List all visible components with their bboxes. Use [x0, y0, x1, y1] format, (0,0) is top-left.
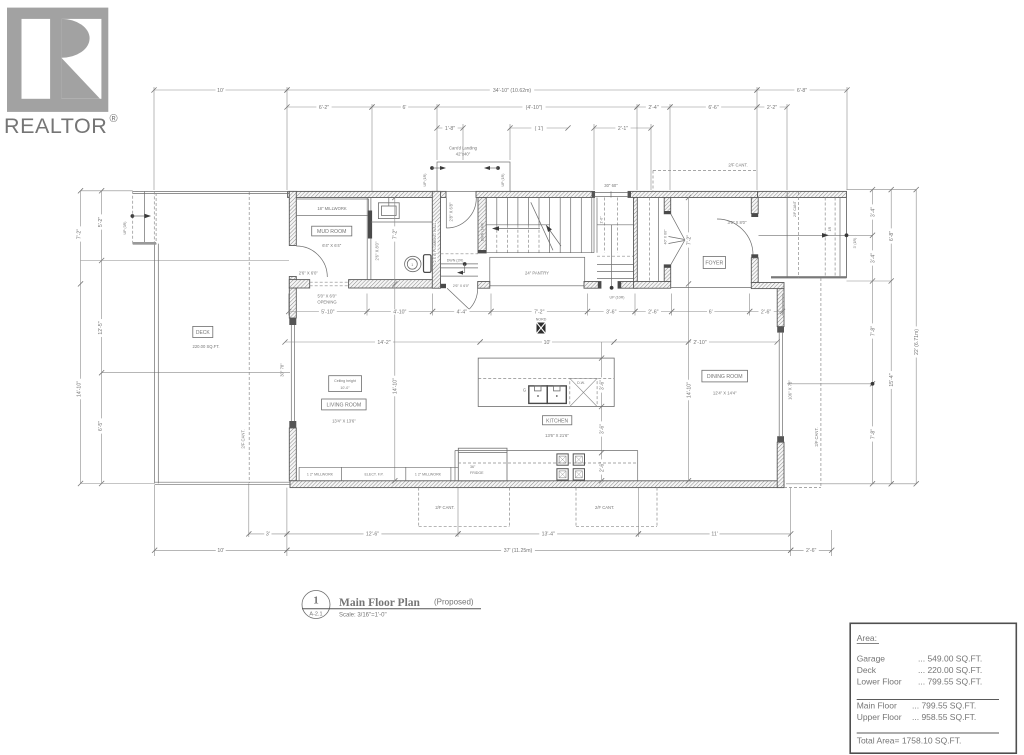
svg-text:2/F CANT.: 2/F CANT. — [814, 427, 819, 446]
svg-text:7'-2": 7'-2" — [77, 229, 83, 239]
svg-text:... 799.55 SQ.FT.: ... 799.55 SQ.FT. — [918, 677, 982, 687]
svg-text:1R: 1R — [828, 226, 832, 231]
svg-text:UP (1R): UP (1R) — [501, 174, 505, 187]
svg-text:18" MILLWORK: 18" MILLWORK — [317, 206, 347, 211]
svg-text:2/F CANT.: 2/F CANT. — [595, 505, 614, 510]
svg-text:Ceiling height: Ceiling height — [334, 379, 356, 383]
svg-text:7'-8": 7'-8" — [870, 326, 876, 336]
svg-text:37' (11.25m): 37' (11.25m) — [504, 548, 533, 554]
svg-text:Scale: 3/16"=1'-0": Scale: 3/16"=1'-0" — [339, 613, 387, 619]
svg-text:DECK: DECK — [196, 330, 211, 336]
svg-text:Deck: Deck — [857, 665, 877, 675]
svg-text:DWN (14R): DWN (14R) — [481, 223, 485, 242]
svg-text:(4'-10"): (4'-10") — [526, 105, 543, 111]
svg-text:1 2" MILLWORK: 1 2" MILLWORK — [307, 473, 334, 477]
svg-text:( 1'): ( 1') — [535, 126, 544, 132]
svg-text:13'4" X 13'6": 13'4" X 13'6" — [332, 419, 356, 424]
svg-text:... 220.00 SQ.FT.: ... 220.00 SQ.FT. — [918, 665, 982, 675]
svg-text:UP (3R): UP (3R) — [123, 222, 127, 235]
svg-text:14'-10": 14'-10" — [77, 381, 83, 397]
svg-text:6'-6": 6'-6" — [708, 105, 718, 111]
svg-text:7'-8": 7'-8" — [870, 429, 876, 439]
svg-text:(Proposed): (Proposed) — [434, 598, 474, 607]
svg-text:7'-2": 7'-2" — [534, 309, 544, 315]
svg-text:KITCHEN: KITCHEN — [546, 418, 568, 424]
svg-text:2'8" X 6'8": 2'8" X 6'8" — [449, 202, 454, 222]
svg-text:DINING ROOM: DINING ROOM — [707, 374, 743, 380]
svg-text:1 2" MILLWORK: 1 2" MILLWORK — [415, 473, 442, 477]
svg-text:10': 10' — [217, 548, 224, 554]
svg-text:3': 3' — [266, 532, 270, 538]
svg-text:13'-4": 13'-4" — [542, 532, 555, 538]
svg-text:3' (1R): 3' (1R) — [853, 238, 857, 249]
svg-text:3'0" X 8'0": 3'0" X 8'0" — [727, 220, 747, 225]
svg-text:2'6" X 6'0": 2'6" X 6'0" — [299, 271, 319, 276]
svg-text:REALTOR: REALTOR — [4, 114, 108, 138]
svg-text:D.W.: D.W. — [577, 381, 585, 385]
svg-text:34'-10" (10.62m): 34'-10" (10.62m) — [493, 88, 532, 94]
svg-text:2'-1": 2'-1" — [618, 126, 628, 132]
svg-text:14'-10": 14'-10" — [686, 382, 692, 398]
svg-text:(2 X 6) PLUMBING WALL: (2 X 6) PLUMBING WALL — [433, 222, 437, 263]
svg-text:30" 78": 30" 78" — [280, 363, 285, 377]
svg-text:42"x40": 42"x40" — [456, 152, 471, 157]
svg-text:2'6" X 8'0": 2'6" X 8'0" — [374, 241, 379, 261]
svg-text:6'-8": 6'-8" — [889, 231, 895, 241]
svg-text:7'-2": 7'-2" — [393, 229, 399, 239]
svg-text:24" PANTRY: 24" PANTRY — [525, 271, 549, 276]
svg-text:2'-2": 2'-2" — [767, 105, 777, 111]
svg-text:FOYER: FOYER — [705, 260, 723, 266]
svg-text:5'-2": 5'-2" — [98, 217, 104, 227]
svg-text:14'-2": 14'-2" — [377, 340, 390, 346]
svg-text:6'4" X 6'4": 6'4" X 6'4" — [322, 243, 342, 248]
svg-text:1'-6": 1'-6" — [600, 216, 604, 224]
svg-text:12'-5": 12'-5" — [98, 321, 104, 334]
svg-text:30" 60": 30" 60" — [604, 183, 618, 188]
svg-text:3'-6": 3'-6" — [599, 380, 605, 390]
svg-text:Garage: Garage — [857, 654, 886, 664]
svg-text:1: 1 — [313, 595, 319, 607]
svg-text:3'-6": 3'-6" — [599, 424, 605, 434]
svg-text:14'-10": 14'-10" — [393, 378, 399, 394]
svg-text:6'-8": 6'-8" — [797, 88, 807, 94]
svg-text:2'-6": 2'-6" — [806, 548, 816, 554]
svg-text:... 549.00 SQ.FT.: ... 549.00 SQ.FT. — [918, 654, 982, 664]
svg-text:®: ® — [110, 113, 118, 125]
svg-text:Total Area= 1758.10 SQ.FT.: Total Area= 1758.10 SQ.FT. — [857, 736, 962, 746]
svg-text:MUD ROOM: MUD ROOM — [317, 229, 346, 235]
svg-text:UP (1R): UP (1R) — [423, 174, 427, 187]
svg-text:1'-8": 1'-8" — [445, 126, 455, 132]
svg-text:220.00 SQ.FT.: 220.00 SQ.FT. — [193, 344, 220, 349]
svg-text:Main Floor Plan: Main Floor Plan — [339, 597, 421, 609]
svg-text:4'-10": 4'-10" — [393, 309, 406, 315]
svg-text:2/F CANT: 2/F CANT — [793, 200, 797, 217]
svg-text:15'-4": 15'-4" — [889, 373, 895, 386]
svg-text:Lower Floor: Lower Floor — [857, 677, 902, 687]
svg-text:2/F CANT.: 2/F CANT. — [728, 163, 747, 168]
svg-text:OPENING: OPENING — [317, 300, 336, 305]
svg-text:4'-4": 4'-4" — [457, 309, 467, 315]
svg-text:12'4" X 14'4": 12'4" X 14'4" — [713, 391, 737, 396]
svg-text:13'6" X 21'6": 13'6" X 21'6" — [545, 433, 569, 438]
svg-text:5'0" X 6'0": 5'0" X 6'0" — [317, 294, 337, 299]
svg-text:3'-6": 3'-6" — [606, 309, 616, 315]
svg-text:ELECT. F.P.: ELECT. F.P. — [365, 473, 384, 477]
svg-text:106" X 78": 106" X 78" — [788, 380, 793, 400]
svg-text:2'6" X 6'0": 2'6" X 6'0" — [453, 284, 470, 288]
svg-text:12'-6": 12'-6" — [366, 532, 379, 538]
svg-text:1: 1 — [411, 263, 413, 267]
svg-text:6': 6' — [403, 105, 407, 111]
svg-text:10': 10' — [217, 88, 224, 94]
svg-text:NORD: NORD — [536, 318, 547, 322]
svg-text:7'-2": 7'-2" — [686, 235, 692, 245]
svg-text:2/F CANT.: 2/F CANT. — [435, 505, 454, 510]
svg-text:11': 11' — [711, 532, 717, 538]
svg-text:LIVING ROOM: LIVING ROOM — [327, 402, 362, 408]
svg-text:2'-10": 2'-10" — [693, 340, 706, 346]
svg-text:6': 6' — [709, 309, 713, 315]
svg-text:10'-0": 10'-0" — [340, 386, 350, 390]
svg-text:G: G — [523, 388, 526, 393]
svg-text:DWN (2R): DWN (2R) — [447, 259, 464, 263]
svg-text:Area:: Area: — [857, 633, 877, 643]
svg-text:... 958.55 SQ.FT.: ... 958.55 SQ.FT. — [912, 712, 976, 722]
svg-text:22' (6.71m): 22' (6.71m) — [914, 329, 920, 355]
svg-text:3'-4": 3'-4" — [870, 253, 876, 263]
svg-text:... 799.55 SQ.FT.: ... 799.55 SQ.FT. — [912, 701, 976, 711]
svg-text:3'-4": 3'-4" — [870, 207, 876, 217]
svg-text:FRIDGE: FRIDGE — [470, 471, 484, 475]
svg-text:Main Floor: Main Floor — [857, 701, 897, 711]
svg-text:6'-5": 6'-5" — [98, 421, 104, 431]
svg-text:A-2.1: A-2.1 — [309, 612, 322, 618]
svg-text:2/F CANT.: 2/F CANT. — [241, 429, 246, 448]
svg-text:UP (10R): UP (10R) — [610, 296, 625, 300]
svg-text:Cant'd Landing: Cant'd Landing — [449, 146, 478, 151]
svg-text:5'-10": 5'-10" — [321, 309, 334, 315]
svg-text:6'-2": 6'-2" — [319, 105, 329, 111]
svg-text:2'-6": 2'-6" — [648, 309, 658, 315]
svg-text:2'-6": 2'-6" — [761, 309, 771, 315]
svg-text:40" X 60": 40" X 60" — [664, 229, 668, 245]
svg-text:Upper Floor: Upper Floor — [857, 712, 902, 722]
svg-text:2'-4": 2'-4" — [648, 105, 658, 111]
svg-text:36": 36" — [470, 465, 476, 469]
svg-text:10': 10' — [544, 340, 551, 346]
